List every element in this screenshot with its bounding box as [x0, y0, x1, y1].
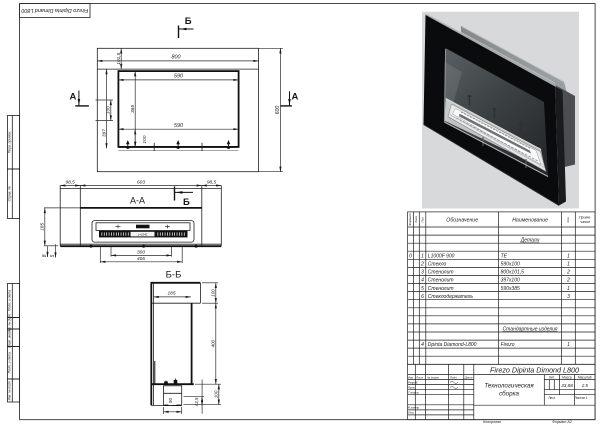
- svg-text:590: 590: [174, 123, 183, 129]
- svg-text:185: 185: [40, 223, 45, 231]
- svg-text:Стандартные изделия: Стандартные изделия: [503, 326, 558, 332]
- svg-text:Дата: Дата: [464, 375, 473, 379]
- svg-text:5: 5: [421, 286, 424, 292]
- svg-text:A: A: [292, 92, 299, 103]
- svg-text:4: 4: [421, 278, 424, 284]
- svg-text:Изм: Изм: [408, 375, 413, 379]
- svg-text:Листов 1: Листов 1: [574, 396, 587, 400]
- svg-text:А-А: А-А: [130, 196, 145, 206]
- svg-text:чание: чание: [580, 220, 590, 224]
- svg-text:Масштаб: Масштаб: [578, 375, 592, 379]
- svg-text:800: 800: [172, 55, 181, 61]
- svg-text:590: 590: [174, 74, 183, 80]
- svg-text:90: 90: [168, 398, 173, 404]
- svg-text:Формат: Формат: [408, 213, 412, 225]
- svg-text:Наименование: Наименование: [512, 218, 548, 224]
- svg-text:1: 1: [567, 262, 570, 268]
- svg-text:100: 100: [142, 135, 148, 143]
- svg-text:Взам. инв. №: Взам. инв. №: [8, 327, 12, 347]
- svg-text:98,5: 98,5: [66, 179, 76, 185]
- svg-text:800х101,5: 800х101,5: [501, 270, 525, 276]
- svg-text:Н.контр.: Н.контр.: [408, 406, 420, 410]
- svg-text:Стеклодержатель: Стеклодержатель: [428, 294, 474, 300]
- svg-text:5: 5: [50, 254, 56, 257]
- svg-text:Б-Б: Б-Б: [166, 270, 182, 281]
- svg-text:сборка: сборка: [499, 391, 519, 398]
- svg-text:100: 100: [106, 106, 112, 114]
- svg-text:365: 365: [130, 105, 136, 113]
- svg-text:100: 100: [211, 289, 216, 297]
- svg-text:Технологическая: Технологическая: [484, 383, 534, 390]
- svg-text:3: 3: [567, 294, 570, 300]
- svg-text:1: 1: [567, 254, 570, 260]
- svg-text:43,5: 43,5: [194, 397, 199, 406]
- svg-text:Стенолит: Стенолит: [428, 286, 454, 292]
- svg-text:6: 6: [421, 294, 424, 300]
- svg-text:Разраб.: Разраб.: [408, 380, 418, 384]
- svg-text:Кол.: Кол.: [566, 216, 570, 222]
- svg-text:Перв. примен.: Перв. примен.: [8, 131, 12, 154]
- svg-text:100: 100: [214, 390, 219, 398]
- svg-text:Стенолит: Стенолит: [428, 270, 454, 276]
- svg-text:1: 1: [567, 286, 570, 292]
- svg-text:Dpinta Diamond-L800: Dpinta Diamond-L800: [428, 342, 477, 348]
- svg-text:№ докум.: № докум.: [427, 375, 440, 379]
- svg-text:2: 2: [566, 278, 570, 284]
- svg-text:600: 600: [275, 106, 281, 115]
- svg-text:Подп. и дата: Подп. и дата: [8, 290, 12, 311]
- svg-text:2: 2: [420, 262, 424, 268]
- svg-text:Детали: Детали: [520, 238, 540, 244]
- svg-text:L1000F 900: L1000F 900: [428, 254, 455, 260]
- svg-text:Firezo Dipinta Dimand L800: Firezo Dipinta Dimand L800: [21, 7, 88, 13]
- svg-text:590х385: 590х385: [501, 286, 520, 292]
- svg-text:397: 397: [101, 129, 107, 137]
- svg-text:L=1040: L=1040: [138, 232, 148, 236]
- svg-text:A: A: [70, 92, 77, 103]
- svg-text:Поз.: Поз.: [420, 216, 424, 222]
- svg-text:0: 0: [409, 254, 412, 260]
- svg-text:1: 1: [567, 342, 570, 348]
- svg-text:8: 8: [42, 254, 48, 257]
- svg-text:1: 1: [421, 254, 424, 260]
- svg-text:Формат А2: Формат А2: [552, 420, 572, 424]
- svg-text:590х100: 590х100: [501, 262, 520, 268]
- svg-text:Стекло: Стекло: [428, 262, 447, 268]
- svg-text:Лист: Лист: [415, 375, 424, 379]
- svg-text:ТЕ: ТЕ: [501, 254, 508, 260]
- svg-text:Утв.: Утв.: [408, 411, 415, 415]
- svg-text:Справ. №: Справ. №: [8, 186, 12, 202]
- svg-text:Стенолит: Стенолит: [428, 278, 454, 284]
- svg-text:Копировал: Копировал: [483, 420, 501, 424]
- svg-text:603: 603: [137, 179, 145, 185]
- svg-text:1:5: 1:5: [582, 383, 589, 388]
- svg-text:Лит.: Лит.: [549, 375, 555, 379]
- svg-text:Зона: Зона: [414, 216, 418, 223]
- svg-text:185: 185: [167, 291, 175, 297]
- svg-text:Обозначение: Обозначение: [446, 218, 478, 224]
- svg-text:33,88: 33,88: [561, 383, 573, 388]
- svg-text:300: 300: [137, 250, 145, 256]
- svg-text:406: 406: [137, 256, 145, 262]
- svg-text:Firezo Dipinta Dimond L800: Firezo Dipinta Dimond L800: [490, 365, 579, 374]
- svg-text:2: 2: [566, 270, 570, 276]
- svg-text:3: 3: [421, 270, 424, 276]
- svg-text:Б: Б: [183, 197, 190, 208]
- svg-text:Лист: Лист: [548, 396, 555, 400]
- svg-text:Т.контр.: Т.контр.: [408, 391, 420, 395]
- svg-text:Пров.: Пров.: [408, 385, 416, 389]
- svg-text:101,5: 101,5: [116, 52, 122, 64]
- svg-text:Приме-: Приме-: [579, 216, 592, 220]
- svg-text:4: 4: [421, 342, 424, 348]
- svg-text:Firezo: Firezo: [501, 342, 515, 348]
- svg-text:Б: Б: [185, 16, 192, 27]
- svg-text:397х100: 397х100: [501, 278, 520, 284]
- svg-text:400: 400: [211, 339, 216, 347]
- svg-text:Масса: Масса: [562, 375, 572, 379]
- svg-text:Инв. № подл.: Инв. № подл.: [8, 380, 12, 400]
- svg-text:98,5: 98,5: [207, 179, 217, 185]
- svg-text:Подп.: Подп.: [450, 375, 458, 379]
- svg-text:Подп. и дата: Подп. и дата: [8, 352, 12, 373]
